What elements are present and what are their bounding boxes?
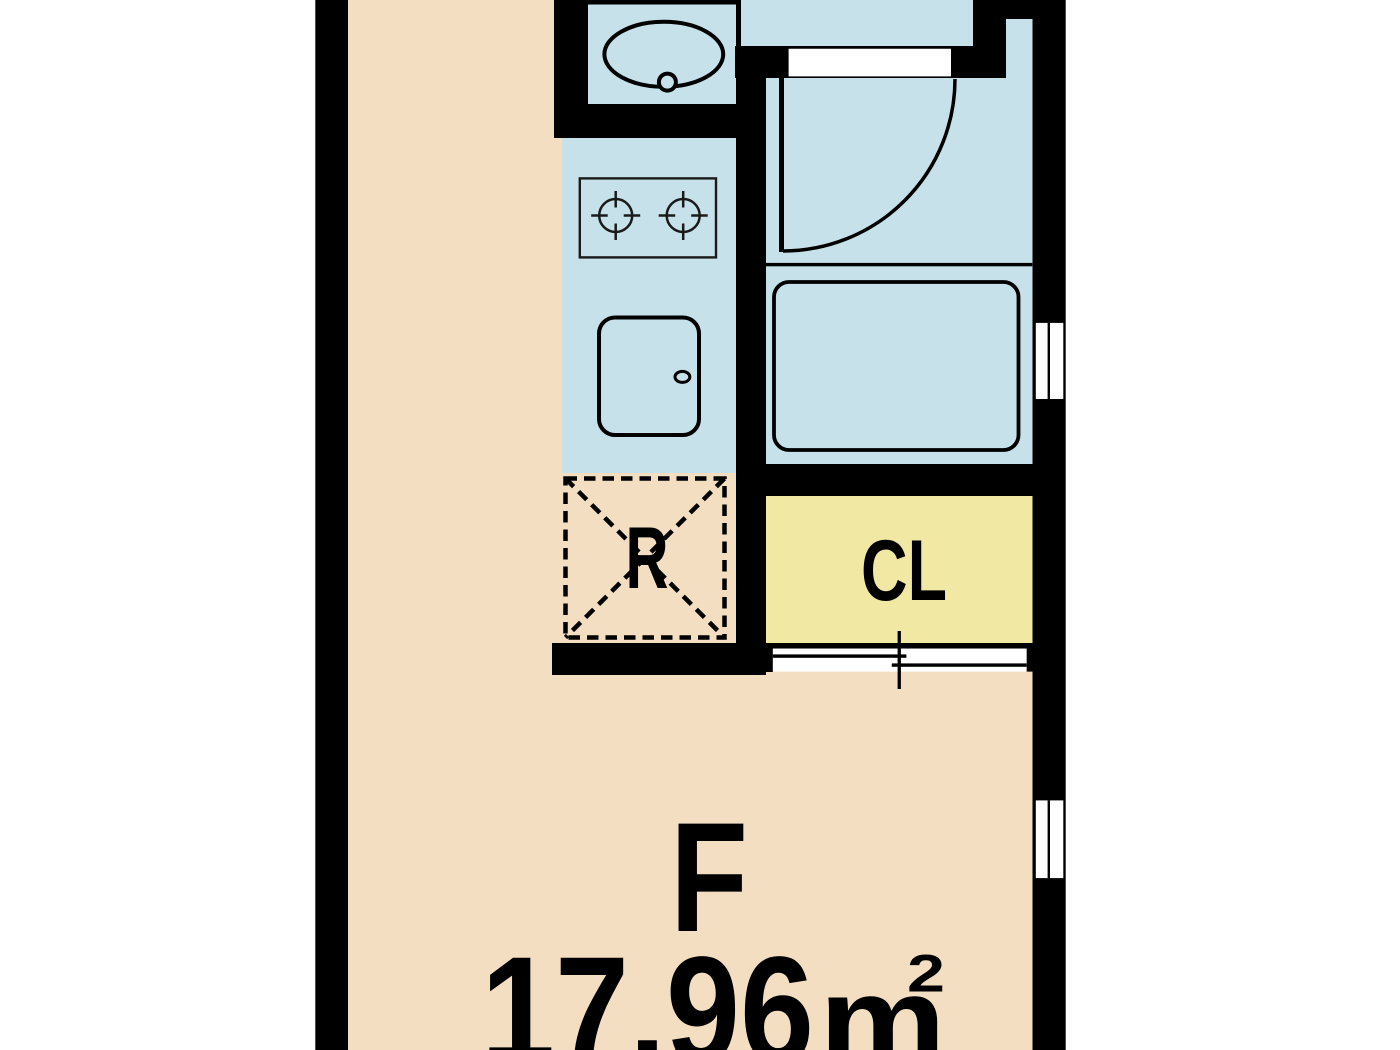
svg-text:R: R: [626, 508, 669, 607]
svg-text:CL: CL: [861, 523, 947, 619]
svg-text:2: 2: [907, 945, 945, 1004]
svg-text:17.96: 17.96: [481, 925, 814, 1050]
